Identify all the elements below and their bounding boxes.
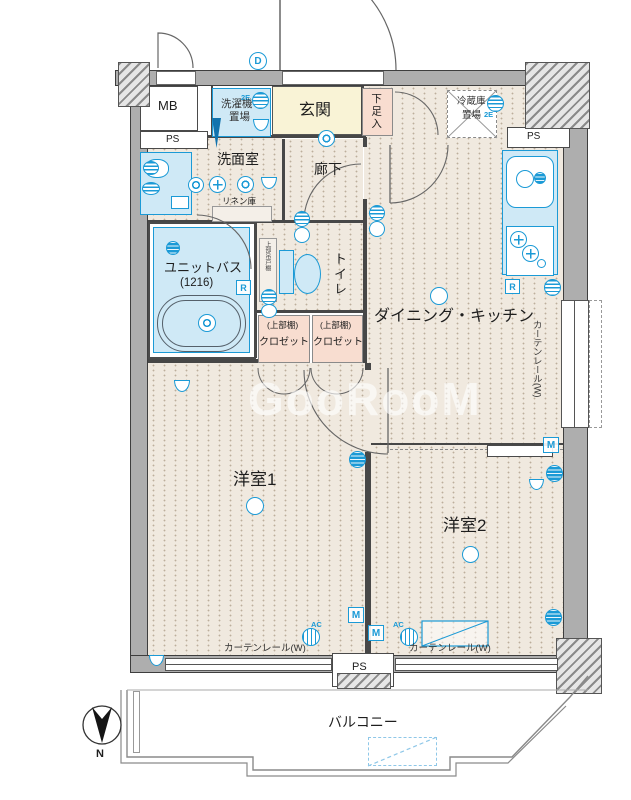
toilet-tank <box>279 250 294 294</box>
room1-ac-label: AC <box>311 620 322 629</box>
fridge-label-2: 置場 <box>462 111 481 122</box>
balcony-outline-outer <box>121 690 566 776</box>
balcony-label: バルコニー <box>328 714 398 730</box>
sink-drain-symbol <box>534 172 546 184</box>
washroom-label: 洗面室 <box>217 151 259 167</box>
room1-balcony-window <box>165 658 332 671</box>
dk-label: ダイニング・キッチン <box>374 308 534 326</box>
bath-r-badge: R <box>236 280 251 295</box>
room2-balcony-window <box>395 658 558 671</box>
watermark: GooRooM <box>248 372 482 426</box>
closet-1-shelf-label: (上部棚) <box>267 321 298 331</box>
pipe-space-right-label: PS <box>527 131 540 143</box>
dk-side-window <box>561 300 589 428</box>
toilet-switch-symbol <box>261 304 277 318</box>
wall-corridor-dk-b <box>363 199 367 225</box>
wall-column-dk <box>363 225 367 363</box>
room2-light-symbol <box>462 546 479 563</box>
genkan-light-symbol <box>318 130 335 147</box>
closet-2-shelf-label: (上部棚) <box>320 321 351 331</box>
vanity-symbol-2 <box>142 182 160 195</box>
toilet-upper-cabinet-label: 上部吊戸棚 <box>263 241 270 271</box>
closet-2-label: クロゼット <box>313 337 363 349</box>
shower-head-symbol <box>166 241 180 255</box>
dk-entry-symbol-2 <box>369 221 385 237</box>
hatch-top-right <box>525 62 590 129</box>
entrance-d-badge: D <box>249 52 267 70</box>
room2-ac-label: AC <box>393 620 404 629</box>
entrance-door-opening <box>282 71 384 85</box>
dk-entry-symbol-1 <box>369 205 385 221</box>
laundry-label-2: 置場 <box>229 111 250 123</box>
unit-bath-size: (1216) <box>180 277 213 290</box>
fridge-2e-badge: 2E <box>484 110 493 119</box>
ps-sill-hatch <box>337 673 391 689</box>
linen-closet-label: リネン庫 <box>222 197 256 207</box>
balcony-divider <box>133 691 140 753</box>
toilet-outlet-symbol <box>261 289 277 305</box>
compass-circle <box>83 706 121 744</box>
washroom-symbol-1 <box>188 177 204 193</box>
kitchen-r-badge: R <box>505 279 520 294</box>
floor-plan: MB PS 洗濯機 置場 玄関 下足入 冷蔵庫 置場 PS 洗面室 リネン庫 廊… <box>0 0 631 800</box>
vanity-cabinet <box>171 196 189 209</box>
dk-curtain-rail-label: カーテンレール(W) <box>532 320 542 398</box>
side-window-dashed-outline <box>589 300 602 428</box>
meter-box-label: MB <box>158 99 178 114</box>
corridor-floor <box>285 139 363 222</box>
mb-door-arc <box>158 33 193 68</box>
sink-faucet-symbol <box>516 170 534 188</box>
corridor-label: 廊下 <box>314 161 342 177</box>
washroom-symbol-3 <box>237 176 254 193</box>
fridge-label-1: 冷蔵庫 <box>457 97 486 108</box>
dk-m-badge: M <box>543 437 559 453</box>
stove-burner-2 <box>522 245 539 262</box>
room2-label: 洋室2 <box>443 516 486 536</box>
stove-burner-1 <box>510 231 527 248</box>
room1-light-symbol <box>246 497 264 515</box>
room1-wall-outlet-symbol <box>349 451 366 468</box>
wall-washroom-corridor <box>282 139 285 222</box>
room2-outlet-symbol-2 <box>545 609 562 626</box>
ac-outdoor-unit-space <box>368 737 437 766</box>
wall-corridor-dk-a <box>363 137 367 147</box>
vanity-symbol-1 <box>143 161 159 175</box>
room1-m-badge: M <box>348 607 364 623</box>
pipe-space-left-label: PS <box>166 134 179 146</box>
room2-outlet-symbol-1 <box>546 465 563 482</box>
room2-curtain-rail-label: カーテンレール(W) <box>409 644 491 655</box>
genkan-label: 玄関 <box>299 102 331 120</box>
linen-closet <box>212 206 272 222</box>
shoe-cabinet-label: 下足入 <box>370 93 382 131</box>
corridor-symbol-1 <box>294 211 310 227</box>
mb-door-opening <box>156 71 196 85</box>
wall-room1-dk-a <box>365 363 371 370</box>
laundry-outlet-symbol <box>252 92 269 109</box>
kitchen-outlet-symbol <box>544 279 561 296</box>
hatch-top-left <box>118 62 150 107</box>
bathtub-drain-symbol <box>198 314 216 332</box>
laundry-label-1: 洗濯機 <box>221 98 253 110</box>
closet-1-label: クロゼット <box>259 337 309 349</box>
room1-curtain-rail-label: カーテンレール(W) <box>224 644 306 655</box>
room1-label: 洋室1 <box>233 470 276 490</box>
compass-needle <box>92 707 112 743</box>
rooms-m-badge: M <box>368 625 384 641</box>
washroom-symbol-2 <box>209 176 226 193</box>
corridor-symbol-2 <box>294 227 310 243</box>
pipe-space-bottom-label: PS <box>352 661 367 674</box>
stove-burner-3 <box>537 259 546 268</box>
dk-light-symbol <box>430 287 448 305</box>
unit-bath-label: ユニットバス <box>164 261 242 276</box>
toilet-bowl <box>294 254 321 294</box>
compass-north-label: N <box>96 748 104 761</box>
toilet-label: トイレ <box>331 252 346 297</box>
entrance-door-arc <box>283 0 396 70</box>
hatch-bottom-right <box>556 638 602 694</box>
